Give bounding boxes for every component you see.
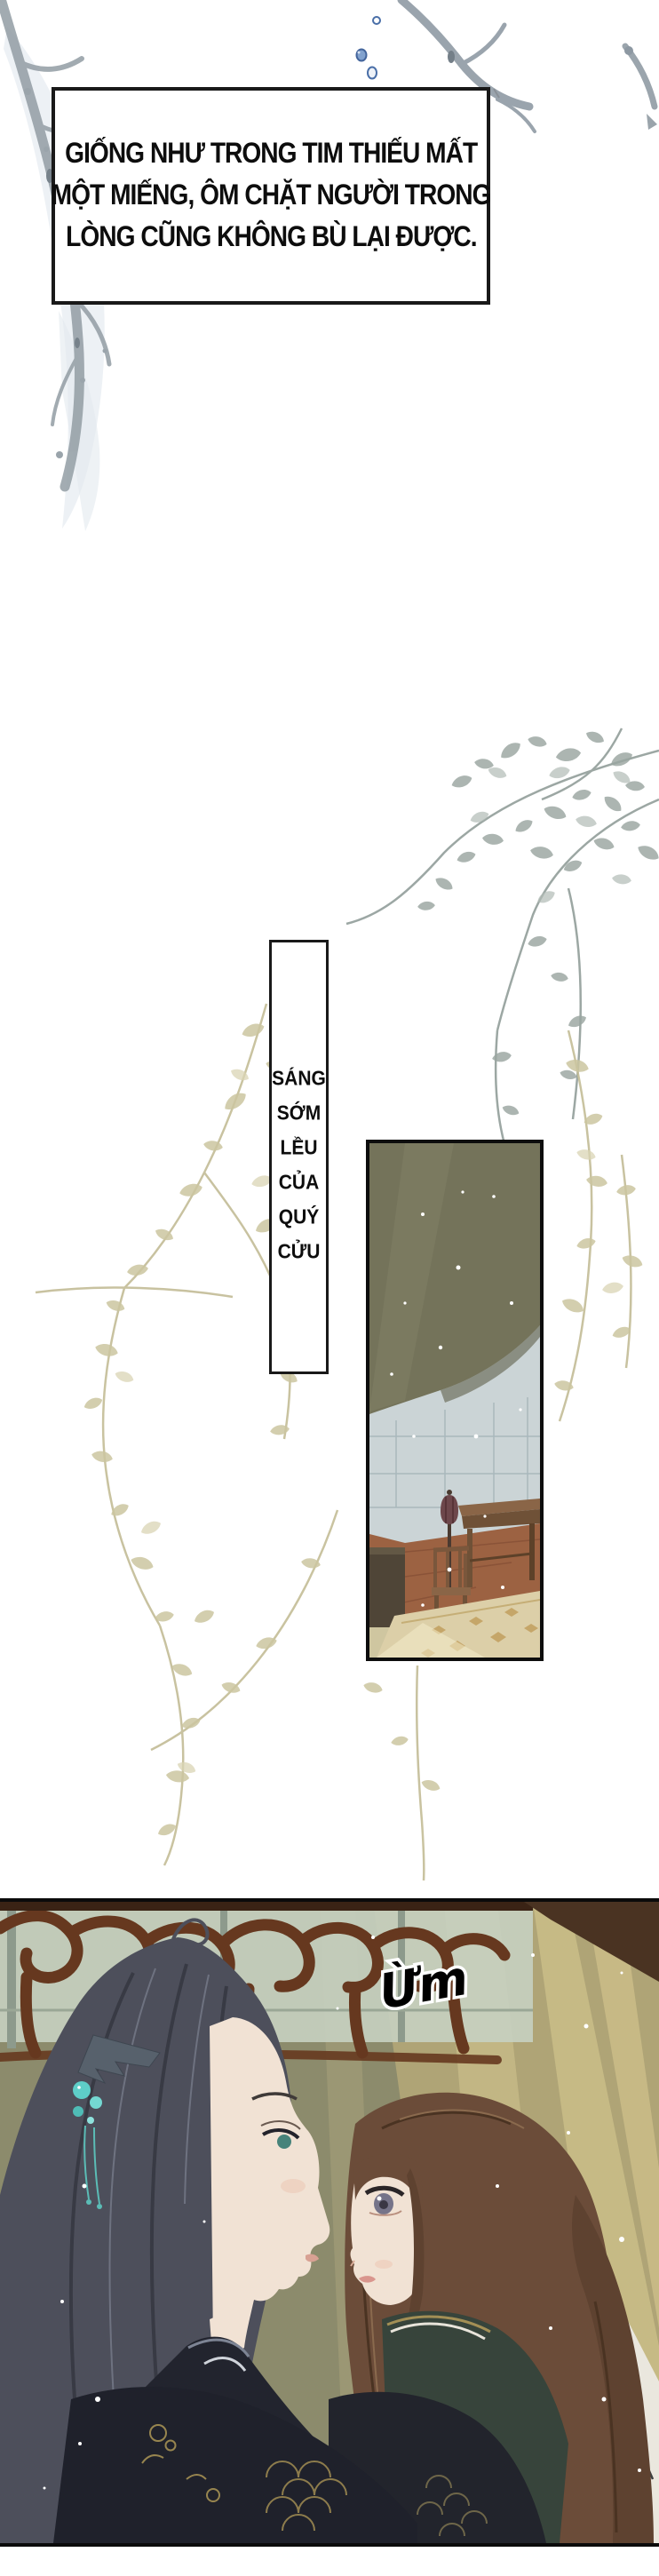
- scene-caption-word: SỚM: [277, 1094, 321, 1133]
- narration-caption: GIỐNG NHƯ TRONG TIM THIẾU MẤT MỘT MIẾNG,…: [52, 87, 490, 305]
- lattice-top-rail: [0, 1902, 533, 1911]
- scene-caption-word: SÁNG: [272, 1060, 326, 1098]
- closeup-panel: Ừm: [0, 1898, 659, 2547]
- foliage-gray-leaves: [417, 728, 659, 1162]
- scene-caption-word: CỬU: [278, 1233, 321, 1271]
- foliage-beige-leaves: [83, 1021, 645, 1838]
- scene-caption-word: LỀU: [281, 1129, 318, 1167]
- foliage-art: [0, 693, 659, 1910]
- man-blush: [281, 2179, 306, 2193]
- narration-line: LÒNG CŨNG KHÔNG BÙ LẠI ĐƯỢC.: [66, 214, 476, 261]
- narration-line: GIỐNG NHƯ TRONG TIM THIẾU MẤT: [65, 131, 477, 178]
- scene-caption: SÁNG SỚM LỀU CỦA QUÝ CỬU: [269, 940, 329, 1374]
- narration-line: MỘT MIẾNG, ÔM CHẶT NGƯỜI TRONG: [52, 172, 491, 219]
- closeup-scene: Ừm: [0, 1902, 659, 2543]
- interior-panel: [366, 1140, 544, 1661]
- scene-caption-word: CỦA: [279, 1164, 320, 1202]
- foliage-gray-stems: [346, 728, 659, 1164]
- interior-scene: [369, 1143, 540, 1658]
- scene-caption-word: QUÝ: [279, 1198, 320, 1236]
- comic-page: GIỐNG NHƯ TRONG TIM THIẾU MẤT MỘT MIẾNG,…: [0, 0, 659, 2576]
- ink-bubbles: [357, 17, 381, 79]
- woman-blush: [375, 2260, 393, 2269]
